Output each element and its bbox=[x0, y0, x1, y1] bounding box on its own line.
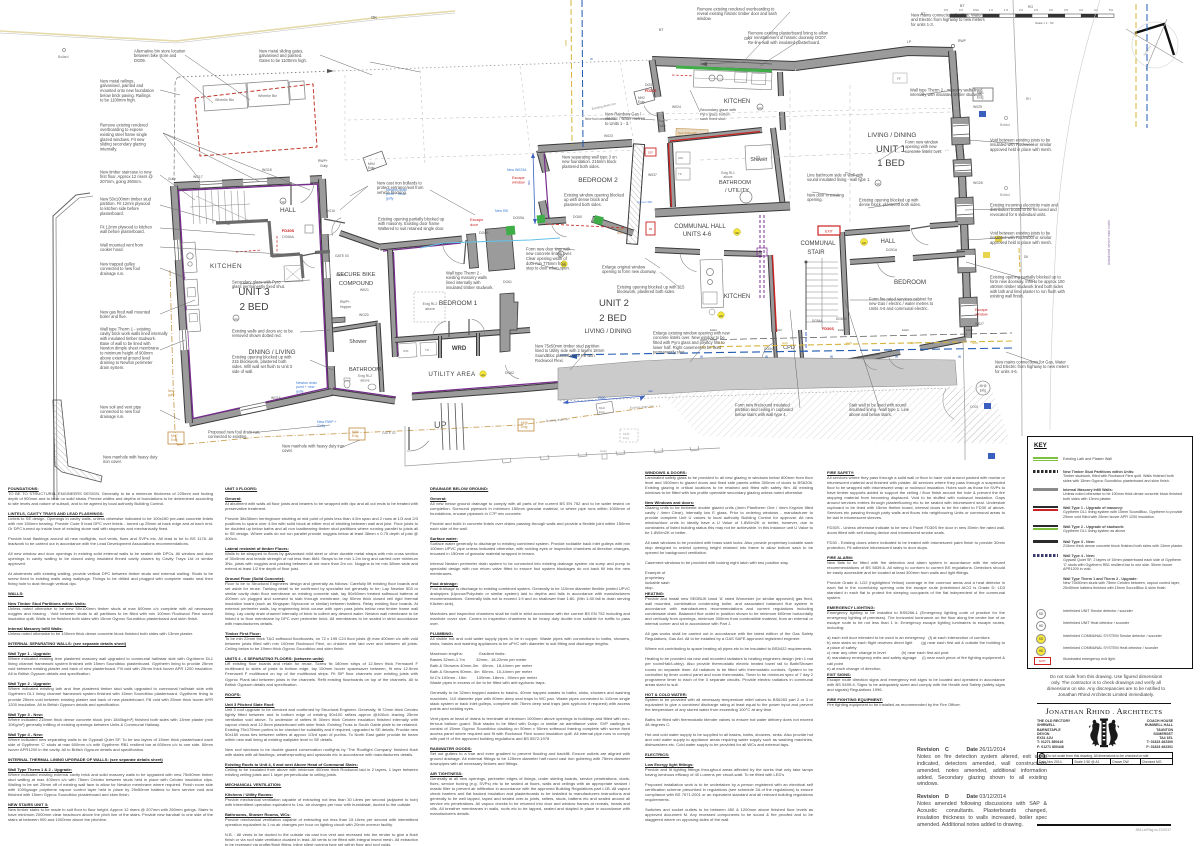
svg-text:Form new window opening with n: Form new window opening with new concret… bbox=[905, 139, 942, 154]
svg-text:WM: WM bbox=[678, 156, 684, 160]
svg-text:ELEC: ELEC bbox=[902, 328, 909, 332]
svg-text:LP: LP bbox=[907, 40, 912, 44]
svg-text:BEDROOM 2: BEDROOM 2 bbox=[578, 177, 618, 184]
svg-text:W023: W023 bbox=[604, 134, 613, 138]
svg-text:Line bathroom side of wall wit: Line bathroom side of wall with sound in… bbox=[807, 172, 871, 182]
svg-text:Alternative bin store location: Alternative bin store location between b… bbox=[134, 48, 187, 63]
svg-text:NORTH: NORTH bbox=[1143, 44, 1153, 56]
svg-text:Remove existing rendered overb: Remove existing rendered overboarding to… bbox=[100, 122, 149, 151]
svg-text:Form new fire/sound insulated: Form new fire/sound insulated partition … bbox=[735, 402, 794, 417]
svg-text:Approx 960: Approx 960 bbox=[637, 200, 653, 204]
svg-text:WRD: WRD bbox=[452, 346, 467, 352]
svg-text:4B: 4B bbox=[649, 227, 652, 231]
svg-text:Shower: Shower bbox=[349, 339, 367, 345]
svg-text:DG66A: DG66A bbox=[282, 235, 294, 239]
svg-text:Wall type Therm 2 - existing m: Wall type Therm 2 - existing masonry wal… bbox=[446, 270, 494, 290]
svg-text:Extg: Extg bbox=[623, 436, 629, 440]
svg-text:RWP+: RWP+ bbox=[318, 159, 328, 163]
svg-text:4.0: 4.0 bbox=[1079, 8, 1083, 12]
svg-text:Void between existing joists t: Void between existing joists to be insul… bbox=[990, 137, 1053, 152]
svg-text:Scale = 1 : 50: Scale = 1 : 50 bbox=[1035, 21, 1054, 25]
svg-text:Enlarge original window openin: Enlarge original window opening to form … bbox=[602, 264, 657, 274]
svg-text:W: W bbox=[700, 355, 703, 359]
svg-text:HALL: HALL bbox=[880, 239, 896, 245]
svg-text:New soil and vent pipe connect: New soil and vent pipe connected to new … bbox=[100, 404, 142, 419]
svg-text:DG54A: DG54A bbox=[812, 319, 823, 323]
svg-text:2 BED: 2 BED bbox=[599, 313, 627, 324]
svg-text:gully: gully bbox=[168, 393, 175, 397]
svg-text:HD: HD bbox=[719, 314, 723, 318]
svg-text:DG09A: DG09A bbox=[513, 216, 525, 220]
svg-text:GATE 02: GATE 02 bbox=[382, 431, 396, 435]
svg-text:Hopper: Hopper bbox=[340, 305, 352, 309]
svg-text:Gully: Gully bbox=[168, 177, 176, 181]
svg-text:LIVING / DINING: LIVING / DINING bbox=[584, 328, 631, 335]
svg-text:Existing opening partially blo: Existing opening partially blocked up to… bbox=[990, 274, 1066, 298]
svg-text:Shower: Shower bbox=[751, 157, 768, 163]
svg-text:HG: HG bbox=[481, 373, 485, 377]
svg-text:W027: W027 bbox=[975, 322, 984, 326]
svg-text:New metal railings, galvanised: New metal railings, galvanised, painted … bbox=[100, 78, 155, 102]
svg-text:BATHROOM: BATHROOM bbox=[719, 180, 751, 186]
svg-text:Existing drain run: Existing drain run bbox=[630, 404, 654, 410]
svg-text:Abandoned service main routes: Abandoned service main routes bbox=[1107, 220, 1111, 265]
svg-text:SECURE BIKE: SECURE BIKE bbox=[337, 272, 376, 278]
svg-text:GAS: GAS bbox=[972, 341, 978, 345]
svg-text:Extg: Extg bbox=[638, 100, 645, 104]
svg-text:DG54B: DG54B bbox=[836, 317, 846, 321]
svg-text:GAS: GAS bbox=[782, 341, 788, 345]
svg-text:EXIT: EXIT bbox=[825, 230, 834, 234]
svg-text:New cast iron bollards to prot: New cast iron bollards to protect entran… bbox=[377, 180, 425, 195]
svg-text:UNIT 1: UNIT 1 bbox=[876, 144, 906, 155]
svg-text:1.0: 1.0 bbox=[989, 8, 993, 12]
svg-text:RWP+: RWP+ bbox=[340, 300, 350, 304]
svg-text:Form fire rated services cabin: Form fire rated services cabinet for new… bbox=[869, 296, 934, 311]
svg-text:FD30S: FD30S bbox=[282, 228, 295, 233]
svg-text:WM: WM bbox=[403, 349, 409, 353]
svg-text:W037: W037 bbox=[648, 173, 657, 177]
svg-text:Extg: Extg bbox=[171, 438, 178, 442]
svg-text:Wall mounted vent from cooker: Wall mounted vent from cooker hood. bbox=[100, 242, 144, 252]
svg-text:FD30S: FD30S bbox=[645, 89, 657, 93]
svg-text:DG07: DG07 bbox=[645, 83, 654, 87]
svg-text:SD: SD bbox=[735, 231, 739, 235]
svg-text:WG26: WG26 bbox=[973, 181, 983, 185]
svg-text:1 BED: 1 BED bbox=[877, 158, 905, 169]
svg-text:New RB: New RB bbox=[495, 209, 509, 213]
svg-text:BEDROOM: BEDROOM bbox=[894, 279, 926, 286]
svg-text:Remove existing plasterboard l: Remove existing plasterboard lining to a… bbox=[748, 30, 829, 45]
svg-text:2 BED: 2 BED bbox=[240, 302, 269, 313]
svg-text:New metal sliding gates, galva: New metal sliding gates, galvanised and … bbox=[259, 48, 307, 63]
svg-text:New mains connections for Gas,: New mains connections for Gas, Water and… bbox=[911, 12, 986, 27]
svg-text:Bollard: Bollard bbox=[58, 55, 69, 59]
svg-text:above: above bbox=[724, 175, 733, 179]
svg-text:STAIR: STAIR bbox=[807, 250, 825, 256]
svg-text:FD30S: FD30S bbox=[822, 327, 834, 331]
svg-text:Remove existing rendered overb: Remove existing rendered overboarding to… bbox=[697, 6, 778, 21]
svg-text:COMMUNAL HALL: COMMUNAL HALL bbox=[674, 224, 726, 230]
svg-text:W: W bbox=[765, 355, 768, 359]
svg-text:Existing drain run: Existing drain run bbox=[546, 417, 570, 423]
svg-text:Extg: Extg bbox=[521, 425, 528, 429]
svg-text:DG09: DG09 bbox=[479, 231, 488, 235]
svg-text:UNITS 4-6: UNITS 4-6 bbox=[683, 232, 712, 238]
svg-text:Extg: Extg bbox=[980, 389, 987, 393]
svg-text:D07: D07 bbox=[648, 151, 653, 155]
svg-text:Gully: Gully bbox=[600, 449, 607, 453]
svg-text:New separating wall type 3 on: New separating wall type 3 on new founda… bbox=[562, 154, 618, 169]
svg-text:Escape window: Escape window bbox=[512, 176, 526, 184]
svg-text:W025: W025 bbox=[973, 105, 982, 109]
svg-text:Existing drain run: Existing drain run bbox=[591, 101, 616, 110]
svg-text:Enlarge existing window openin: Enlarge existing window opening with new… bbox=[653, 330, 731, 354]
svg-text:COMMUNAL: COMMUNAL bbox=[800, 241, 836, 247]
svg-text:BATHROOM: BATHROOM bbox=[349, 367, 381, 373]
svg-text:W021: W021 bbox=[360, 288, 369, 292]
svg-text:W: W bbox=[590, 57, 593, 61]
svg-text:Fit 12mm plywood to kitchen wa: Fit 12mm plywood to kitchen wall before … bbox=[100, 224, 153, 234]
svg-text:Wheelie Bin: Wheelie Bin bbox=[258, 94, 277, 98]
svg-text:KITCHEN: KITCHEN bbox=[724, 294, 750, 300]
svg-text:GATE 03: GATE 03 bbox=[335, 254, 349, 258]
svg-text:DG62: DG62 bbox=[505, 371, 514, 375]
svg-text:New W023A: New W023A bbox=[507, 168, 527, 172]
svg-text:MH5: MH5 bbox=[980, 384, 987, 388]
svg-text:Escape window: Escape window bbox=[975, 308, 989, 316]
svg-text:DG60: DG60 bbox=[573, 215, 582, 219]
svg-text:DG51A: DG51A bbox=[886, 248, 898, 252]
svg-text:Wall type Therm 1 - existing c: Wall type Therm 1 - existing cavity bric… bbox=[100, 326, 169, 370]
svg-text:3.5: 3.5 bbox=[1064, 8, 1068, 12]
svg-text:Secondary glaze with Pyro glas: Secondary glaze with Pyro glass permanen… bbox=[232, 279, 285, 289]
svg-text:HALL: HALL bbox=[280, 207, 296, 214]
svg-text:WG18: WG18 bbox=[262, 168, 272, 172]
svg-text:5.0: 5.0 bbox=[1109, 8, 1113, 12]
svg-text:SVP: SVP bbox=[617, 231, 623, 235]
svg-text:ELEC: ELEC bbox=[775, 328, 782, 332]
svg-text:New manhole with heavy duty ir: New manhole with heavy duty iron cover. bbox=[103, 454, 159, 464]
svg-text:Extg RL2: Extg RL2 bbox=[423, 302, 438, 306]
svg-text:New trapped gulley connected t: New trapped gulley connected to new foul… bbox=[100, 261, 141, 276]
svg-text:2.0: 2.0 bbox=[1019, 8, 1023, 12]
svg-text:KITCHEN: KITCHEN bbox=[724, 99, 750, 105]
svg-text:Extg: Extg bbox=[599, 410, 605, 414]
svg-text:GAS: GAS bbox=[910, 341, 916, 345]
svg-text:Bollard: Bollard bbox=[1000, 193, 1010, 197]
svg-text:RWP: RWP bbox=[958, 39, 967, 43]
svg-text:WG16: WG16 bbox=[271, 396, 281, 400]
svg-text:New timber staircase to new fi: New timber staircase to new first floor.… bbox=[100, 169, 154, 184]
svg-text:Secondary glaze with Pyro glas: Secondary glaze with Pyro glass bottom s… bbox=[700, 108, 737, 121]
svg-text:DG61: DG61 bbox=[503, 280, 512, 284]
svg-text:New gas fired wall mounted boi: New gas fired wall mounted boiler and fl… bbox=[100, 309, 151, 319]
svg-text:W: W bbox=[830, 355, 833, 359]
svg-text:nail: nail bbox=[648, 389, 653, 393]
svg-text:W: W bbox=[895, 355, 898, 359]
svg-text:New RWP + Gully: New RWP + Gully bbox=[317, 420, 338, 428]
svg-text:900: 900 bbox=[527, 180, 531, 185]
svg-text:Existing incoming electricity: Existing incoming electricity main and d… bbox=[990, 202, 1059, 217]
svg-text:TD: TD bbox=[678, 172, 682, 176]
svg-text:New 50x100mm timber stud parti: New 50x100mm timber stud partition. Fit … bbox=[100, 196, 152, 216]
svg-text:above: above bbox=[425, 307, 435, 311]
svg-text:Existing opening blocked up wi: Existing opening blocked up with dense b… bbox=[859, 197, 921, 207]
svg-text:1.5: 1.5 bbox=[1004, 8, 1008, 12]
svg-text:Void between existing joists t: Void between existing joists to be insul… bbox=[990, 230, 1053, 245]
svg-text:RH: RH bbox=[1026, 97, 1031, 101]
svg-text:BEDROOM 1: BEDROOM 1 bbox=[439, 300, 478, 307]
svg-text:2000: 2000 bbox=[598, 396, 606, 400]
svg-text:Proposed new foul drain run, c: Proposed new foul drain run, connected t… bbox=[208, 429, 261, 439]
svg-text:2.5: 2.5 bbox=[1034, 8, 1038, 12]
svg-text:HD: HD bbox=[862, 241, 866, 245]
svg-text:Wall type Therm 2 - masonry wa: Wall type Therm 2 - masonry walls lined … bbox=[910, 87, 984, 97]
svg-text:RG: RG bbox=[1028, 5, 1033, 9]
svg-text:Extg RL2: Extg RL2 bbox=[358, 374, 372, 378]
svg-text:DK: DK bbox=[1024, 255, 1029, 259]
svg-text:GAS: GAS bbox=[846, 341, 852, 345]
svg-text:Extg: Extg bbox=[368, 166, 375, 170]
svg-text:Existing opening blocked up wi: Existing opening blocked up with 215 blo… bbox=[617, 284, 686, 294]
svg-text:Extg: Extg bbox=[352, 434, 359, 438]
svg-text:SD: SD bbox=[876, 182, 880, 186]
svg-text:Wheelie Bin: Wheelie Bin bbox=[215, 98, 234, 102]
svg-text:UTILITY AREA: UTILITY AREA bbox=[428, 371, 476, 378]
svg-text:W: W bbox=[958, 355, 961, 359]
svg-text:KITCHEN: KITCHEN bbox=[210, 263, 242, 270]
svg-text:New manhole with heavy duty ir: New manhole with heavy duty iron cover. bbox=[282, 443, 346, 453]
svg-text:BT: BT bbox=[960, 4, 965, 8]
svg-text:Gully: Gully bbox=[658, 124, 666, 128]
svg-text:ELEC: ELEC bbox=[966, 328, 973, 332]
svg-text:above: above bbox=[360, 379, 369, 383]
svg-text:ELEC: ELEC bbox=[838, 328, 845, 332]
svg-text:COMPOUND: COMPOUND bbox=[339, 281, 373, 287]
svg-text:3.0: 3.0 bbox=[1049, 8, 1053, 12]
svg-text:Escape door: Escape door bbox=[470, 217, 484, 227]
svg-text:HD: HD bbox=[758, 106, 762, 110]
svg-text:D008: D008 bbox=[970, 405, 978, 409]
svg-text:DG10: DG10 bbox=[326, 209, 335, 213]
svg-text:New 75x50mm timber stud partit: New 75x50mm timber stud partition lined … bbox=[535, 343, 606, 363]
svg-text:BT: BT bbox=[659, 28, 664, 32]
svg-text:FF: FF bbox=[897, 77, 901, 81]
svg-text:Gully: Gully bbox=[320, 164, 328, 168]
svg-text:LIVING / DINING: LIVING / DINING bbox=[868, 132, 917, 139]
svg-text:UNIT 2: UNIT 2 bbox=[599, 298, 629, 309]
svg-text:Existing opening partially blo: Existing opening partially blocked up wi… bbox=[378, 216, 445, 231]
svg-text:UP: UP bbox=[434, 420, 447, 430]
svg-text:Existing window opening blocke: Existing window opening blocked up with … bbox=[564, 192, 625, 207]
svg-text:GAS: GAS bbox=[564, 40, 568, 46]
svg-text:WM: WM bbox=[179, 256, 183, 261]
svg-text:W024: W024 bbox=[672, 105, 681, 109]
svg-text:WG20: WG20 bbox=[359, 313, 369, 317]
svg-text:OK: OK bbox=[371, 15, 377, 20]
svg-text:DG54: DG54 bbox=[764, 347, 773, 351]
svg-text:RWP+: RWP+ bbox=[658, 119, 668, 123]
svg-text:SD: SD bbox=[281, 200, 285, 204]
svg-text:Bollard: Bollard bbox=[1000, 123, 1010, 127]
svg-text:HG: HG bbox=[234, 317, 238, 321]
